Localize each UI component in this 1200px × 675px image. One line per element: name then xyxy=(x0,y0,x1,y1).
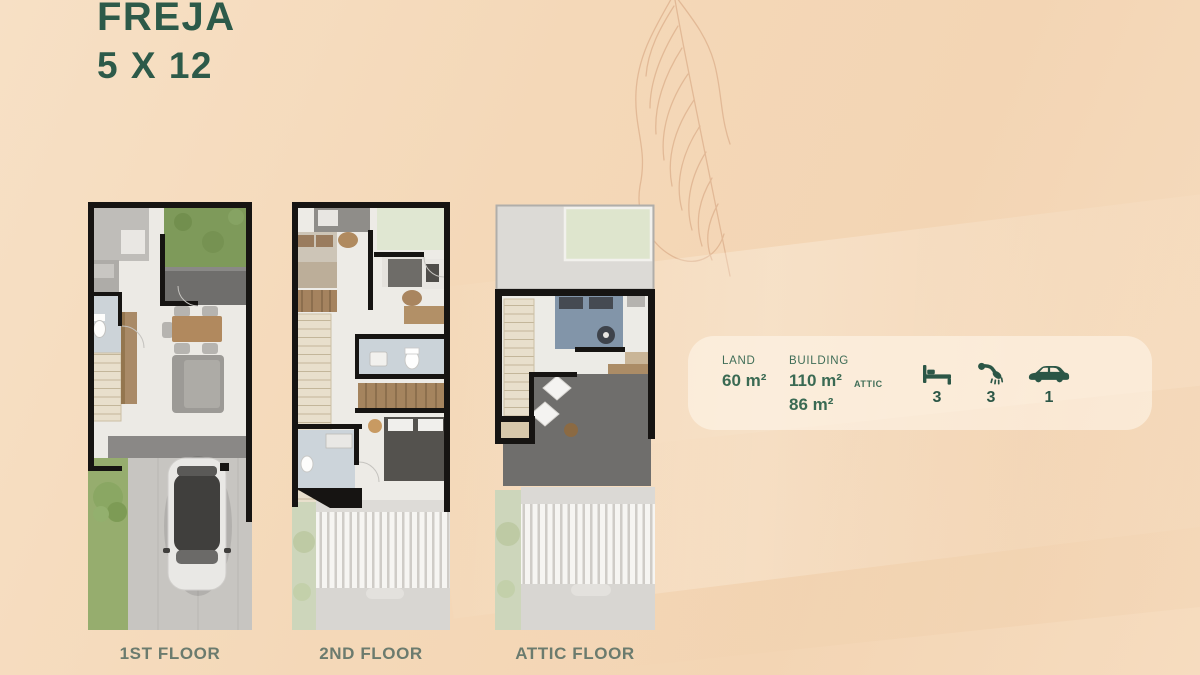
project-size: 5 X 12 xyxy=(97,44,236,88)
floorplan-first-floor-image xyxy=(88,202,252,630)
carport-count: 1 xyxy=(1018,389,1080,407)
carport-roof xyxy=(316,500,450,630)
building-label: BUILDING xyxy=(789,355,883,367)
bed-icon xyxy=(920,363,954,385)
shower-icon xyxy=(976,361,1006,386)
floorplan-attic-floor xyxy=(495,204,655,630)
flat-roof xyxy=(497,206,654,290)
brochure-slide: FREJA 5 X 12 xyxy=(0,0,1200,675)
window-light xyxy=(377,205,447,250)
land-label: LAND xyxy=(722,355,766,367)
wardrobe xyxy=(358,383,447,409)
floorplan-second-floor xyxy=(292,202,450,630)
bathroom-lower xyxy=(295,430,355,488)
bathroom xyxy=(91,295,121,353)
bathroom-middle xyxy=(358,339,447,377)
bedrooms-feature: 3 xyxy=(908,361,966,407)
carport-step xyxy=(108,436,249,458)
attic-label: ATTIC xyxy=(854,379,883,389)
second-floor-label: 2ND FLOOR xyxy=(292,644,450,664)
car-icon xyxy=(1026,364,1072,383)
building-value: 110 m² xyxy=(789,371,842,391)
bathrooms-feature: 3 xyxy=(962,361,1020,407)
attic-floor-label: ATTIC FLOOR xyxy=(475,644,675,664)
sofa xyxy=(172,355,224,413)
bathrooms-count: 3 xyxy=(962,389,1020,407)
carport-roof xyxy=(521,487,655,630)
floorplan-first-floor xyxy=(88,202,252,630)
land-value: 60 m² xyxy=(722,371,766,391)
car-top-view xyxy=(163,456,232,596)
building-spec: BUILDING 110 m² ATTIC 86 m² xyxy=(789,355,883,415)
garden-area xyxy=(164,205,249,305)
floorplan-second-floor-image xyxy=(292,202,450,630)
page-title: FREJA 5 X 12 xyxy=(97,0,236,88)
side-garden-strip xyxy=(292,502,316,630)
carport-feature: 1 xyxy=(1018,361,1080,407)
stairs xyxy=(91,353,121,421)
first-floor-label: 1ST FLOOR xyxy=(88,644,252,664)
side-garden-strip xyxy=(495,490,521,630)
land-spec: LAND 60 m² xyxy=(722,355,766,391)
attic-value: 86 m² xyxy=(789,395,883,415)
floorplan-attic-floor-image xyxy=(495,204,655,630)
project-name: FREJA xyxy=(97,0,236,41)
grass-strip xyxy=(88,458,128,630)
bedrooms-count: 3 xyxy=(908,389,966,407)
